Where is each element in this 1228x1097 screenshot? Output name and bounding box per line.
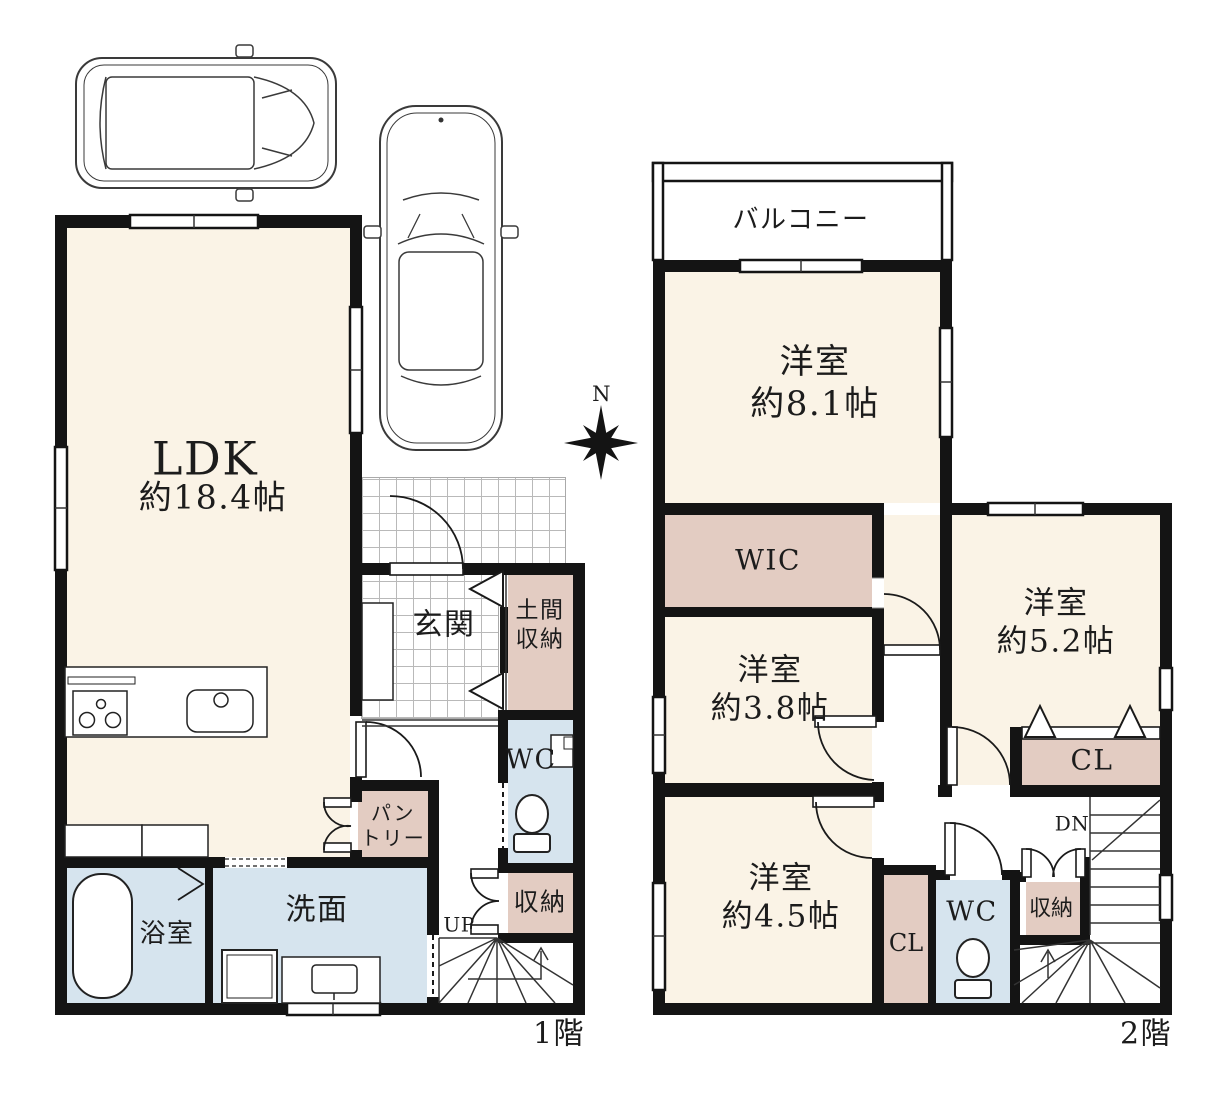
label-wic: WIC	[735, 544, 801, 579]
bathtub	[73, 874, 132, 998]
label-room-4-5: 洋室 約4.5帖	[722, 860, 841, 937]
label-wc2: WC	[946, 895, 997, 928]
label-room-3-8: 洋室 約3.8帖	[711, 652, 830, 729]
label-closet-small: CL	[889, 929, 923, 959]
floorplan-canvas: LDK 約18.4帖 玄関 土間 収納 WC パン トリー 収納 UP 浴室 洗…	[0, 0, 1228, 1097]
label-doma-storage: 土間 収納	[516, 596, 565, 653]
label-pantry: パン トリー	[361, 801, 426, 851]
car-icon-2	[364, 106, 518, 450]
stove	[73, 691, 127, 735]
fixtures-floor2	[955, 939, 991, 998]
label-washroom: 洗面	[286, 891, 349, 928]
label-compass-north: N	[592, 381, 612, 407]
stairs-up-floor1	[439, 938, 573, 1003]
label-bath: 浴室	[139, 918, 194, 950]
label-stairs-down: DN	[1055, 812, 1090, 837]
label-room-5-2: 洋室 約5.2帖	[997, 585, 1116, 662]
toilet-floor1	[516, 795, 548, 833]
label-closet-main: CL	[1070, 744, 1113, 779]
shoe-cabinet	[362, 603, 393, 700]
car-icon-1	[76, 45, 336, 201]
label-genkan: 玄関	[413, 606, 476, 643]
label-floor1: 1階	[533, 1015, 585, 1052]
label-room-8-1: 洋室 約8.1帖	[750, 341, 880, 425]
label-storage2: 収納	[1029, 895, 1073, 922]
compass-icon	[564, 405, 638, 480]
label-storage1: 収納	[513, 887, 566, 918]
label-balcony: バルコニー	[733, 204, 870, 236]
label-wc1: WC	[505, 743, 556, 776]
ldk-cupboard	[65, 825, 142, 857]
label-floor2: 2階	[1120, 1015, 1172, 1052]
label-stairs-up: UP	[443, 913, 474, 938]
label-ldk-size: 約18.4帖	[139, 478, 287, 519]
toilet-floor2	[957, 939, 989, 977]
